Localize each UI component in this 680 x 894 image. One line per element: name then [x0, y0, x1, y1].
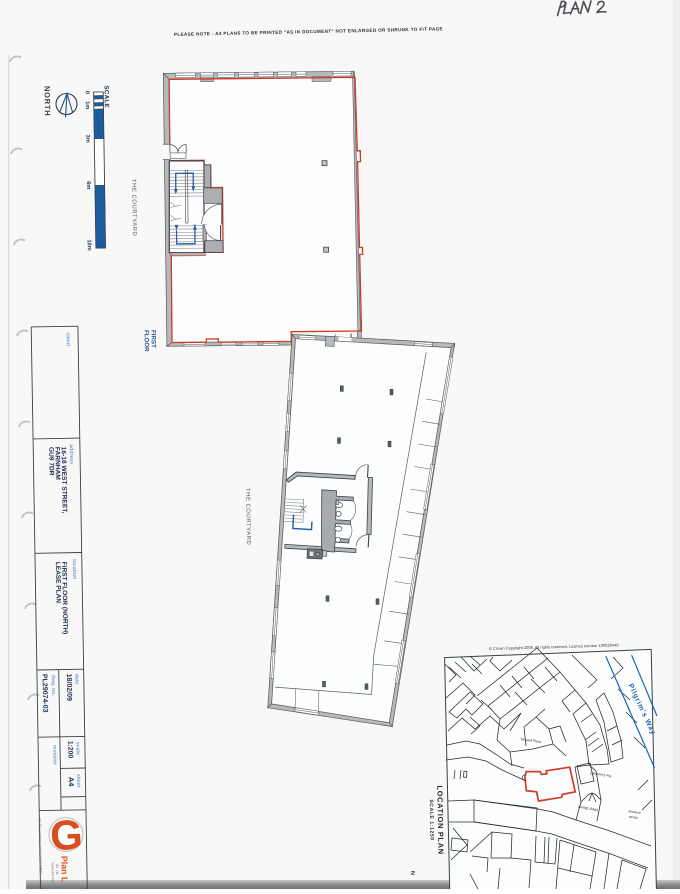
svg-text:6m: 6m — [85, 181, 91, 189]
svg-text:3m: 3m — [84, 135, 90, 143]
svg-text:Plan L: Plan L — [59, 856, 69, 883]
svg-text:THE COURTYARD: THE COURTYARD — [244, 488, 251, 545]
svg-text:revision: revision — [51, 745, 57, 765]
svg-text:scale: scale — [74, 742, 80, 755]
svg-text:N: N — [409, 871, 415, 875]
svg-text:address: address — [68, 444, 74, 464]
svg-text:PL29074-03: PL29074-03 — [41, 674, 49, 713]
svg-text:1m: 1m — [84, 101, 90, 109]
svg-text:NORTH: NORTH — [43, 86, 53, 117]
svg-text:GU9 7DR: GU9 7DR — [47, 447, 55, 476]
svg-text:client: client — [65, 332, 71, 346]
svg-text:www.plan-log: www.plan-log — [51, 862, 55, 882]
svg-text:0: 0 — [84, 91, 90, 94]
svg-text:1:200: 1:200 — [66, 741, 73, 759]
svg-text:SCALE 1:1250: SCALE 1:1250 — [428, 799, 435, 840]
svg-text:date: date — [73, 674, 79, 685]
svg-text:dwg. no.: dwg. no. — [50, 675, 56, 697]
svg-text:Tel : 08: Tel : 08 — [55, 863, 59, 874]
svg-text:10m: 10m — [86, 239, 92, 250]
svg-text:location: location — [71, 559, 77, 579]
svg-text:18/02/09: 18/02/09 — [65, 674, 72, 701]
svg-text:FLOOR: FLOOR — [143, 330, 150, 352]
svg-text:G: G — [49, 811, 83, 859]
svg-text:A4: A4 — [67, 777, 76, 788]
svg-text:LEASE PLAN: LEASE PLAN — [54, 562, 62, 604]
svg-text:THE COURTYARD: THE COURTYARD — [130, 179, 137, 236]
svg-text:LOCATION PLAN: LOCATION PLAN — [435, 785, 445, 854]
